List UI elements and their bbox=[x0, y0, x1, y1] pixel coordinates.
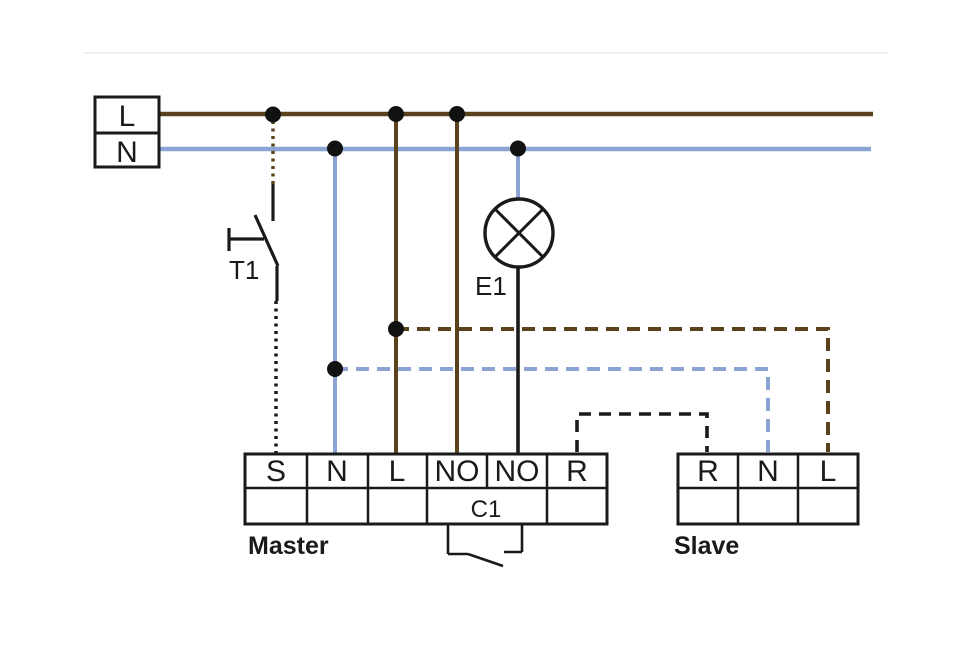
junction-dot bbox=[327, 361, 343, 377]
master-terminal-no1-label: NO bbox=[435, 455, 480, 488]
master-terminal-block: S N L NO NO R C1 Master bbox=[245, 454, 607, 566]
relay-contact-symbol bbox=[448, 524, 522, 566]
master-terminal-s-label: S bbox=[266, 455, 286, 488]
master-terminal-n-label: N bbox=[326, 455, 348, 488]
switch-t1-label: T1 bbox=[229, 255, 259, 285]
slave-live-dashed-wire bbox=[396, 329, 828, 452]
power-source-box: L N bbox=[95, 97, 159, 169]
wiring-diagram-canvas: L N T1 E1 bbox=[0, 0, 970, 656]
junction-dot bbox=[265, 107, 281, 123]
slave-terminal-block: R N L Slave bbox=[674, 454, 858, 560]
slave-terminal-n-label: N bbox=[757, 455, 779, 488]
master-terminal-l-label: L bbox=[389, 455, 406, 488]
master-terminal-r-label: R bbox=[566, 455, 588, 488]
source-terminal-neutral-label: N bbox=[116, 136, 138, 169]
slave-caption: Slave bbox=[674, 532, 739, 560]
slave-neutral-dashed-wire bbox=[335, 369, 768, 452]
relay-c1-label: C1 bbox=[471, 496, 502, 523]
junction-dot bbox=[510, 141, 526, 157]
master-terminal-no2-label: NO bbox=[495, 455, 540, 488]
dashed-interconnect-wires bbox=[335, 329, 828, 452]
slave-terminal-l-label: L bbox=[820, 455, 837, 488]
source-terminal-live-label: L bbox=[119, 100, 136, 133]
junction-dot bbox=[449, 106, 465, 122]
lamp-e1-label: E1 bbox=[475, 271, 507, 301]
wiring-diagram: L N T1 E1 bbox=[0, 0, 970, 656]
junction-dot bbox=[327, 141, 343, 157]
junction-dot bbox=[388, 106, 404, 122]
slave-terminal-r-label: R bbox=[697, 455, 719, 488]
r-link-dashed-wire bbox=[577, 414, 707, 452]
master-caption: Master bbox=[248, 532, 329, 560]
junction-dot bbox=[388, 321, 404, 337]
lamp-e1-symbol bbox=[485, 199, 553, 267]
